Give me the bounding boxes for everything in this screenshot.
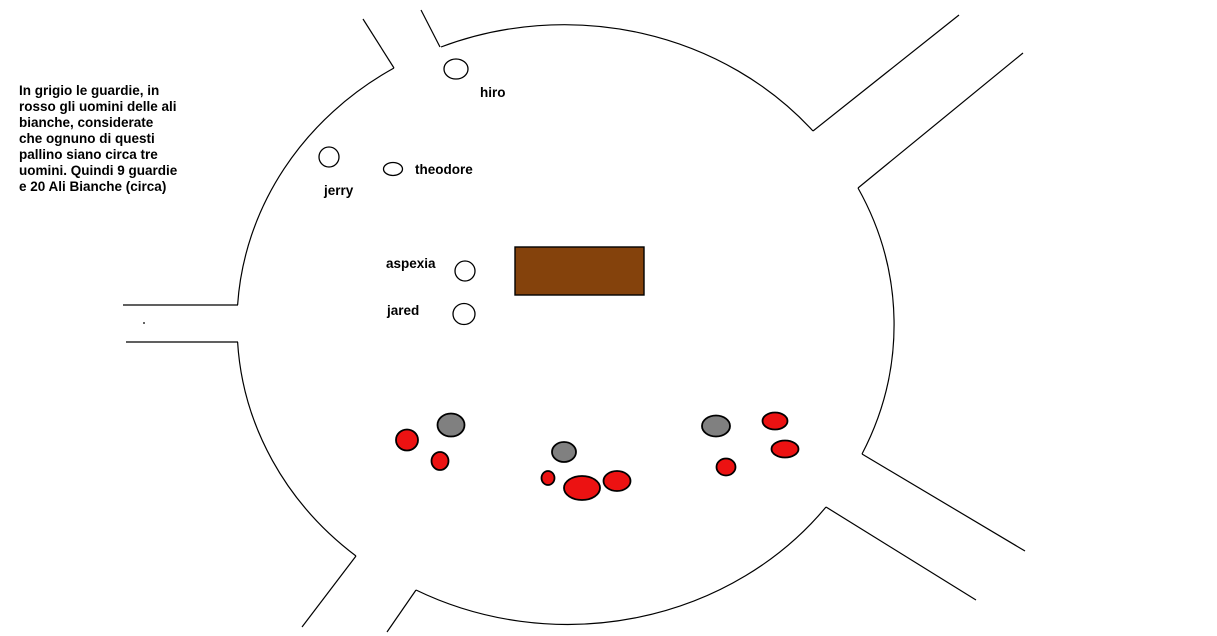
svg-text:In grigio le guardie, in: In grigio le guardie, in: [19, 83, 159, 98]
svg-text:uomini. Quindi 9 guardie: uomini. Quindi 9 guardie: [19, 163, 178, 178]
svg-text:hiro: hiro: [480, 85, 506, 100]
svg-text:pallino siano circa tre: pallino siano circa tre: [19, 147, 158, 162]
svg-text:bianche, considerate: bianche, considerate: [19, 115, 154, 130]
svg-text:che ognuno di questi: che ognuno di questi: [19, 131, 155, 146]
svg-text:e 20 Ali Bianche (circa): e 20 Ali Bianche (circa): [19, 179, 166, 194]
svg-text:theodore: theodore: [415, 162, 473, 177]
svg-text:jerry: jerry: [323, 183, 354, 198]
svg-text:jared: jared: [386, 303, 419, 318]
svg-text:aspexia: aspexia: [386, 256, 436, 271]
svg-text:rosso gli uomini delle ali: rosso gli uomini delle ali: [19, 99, 177, 114]
